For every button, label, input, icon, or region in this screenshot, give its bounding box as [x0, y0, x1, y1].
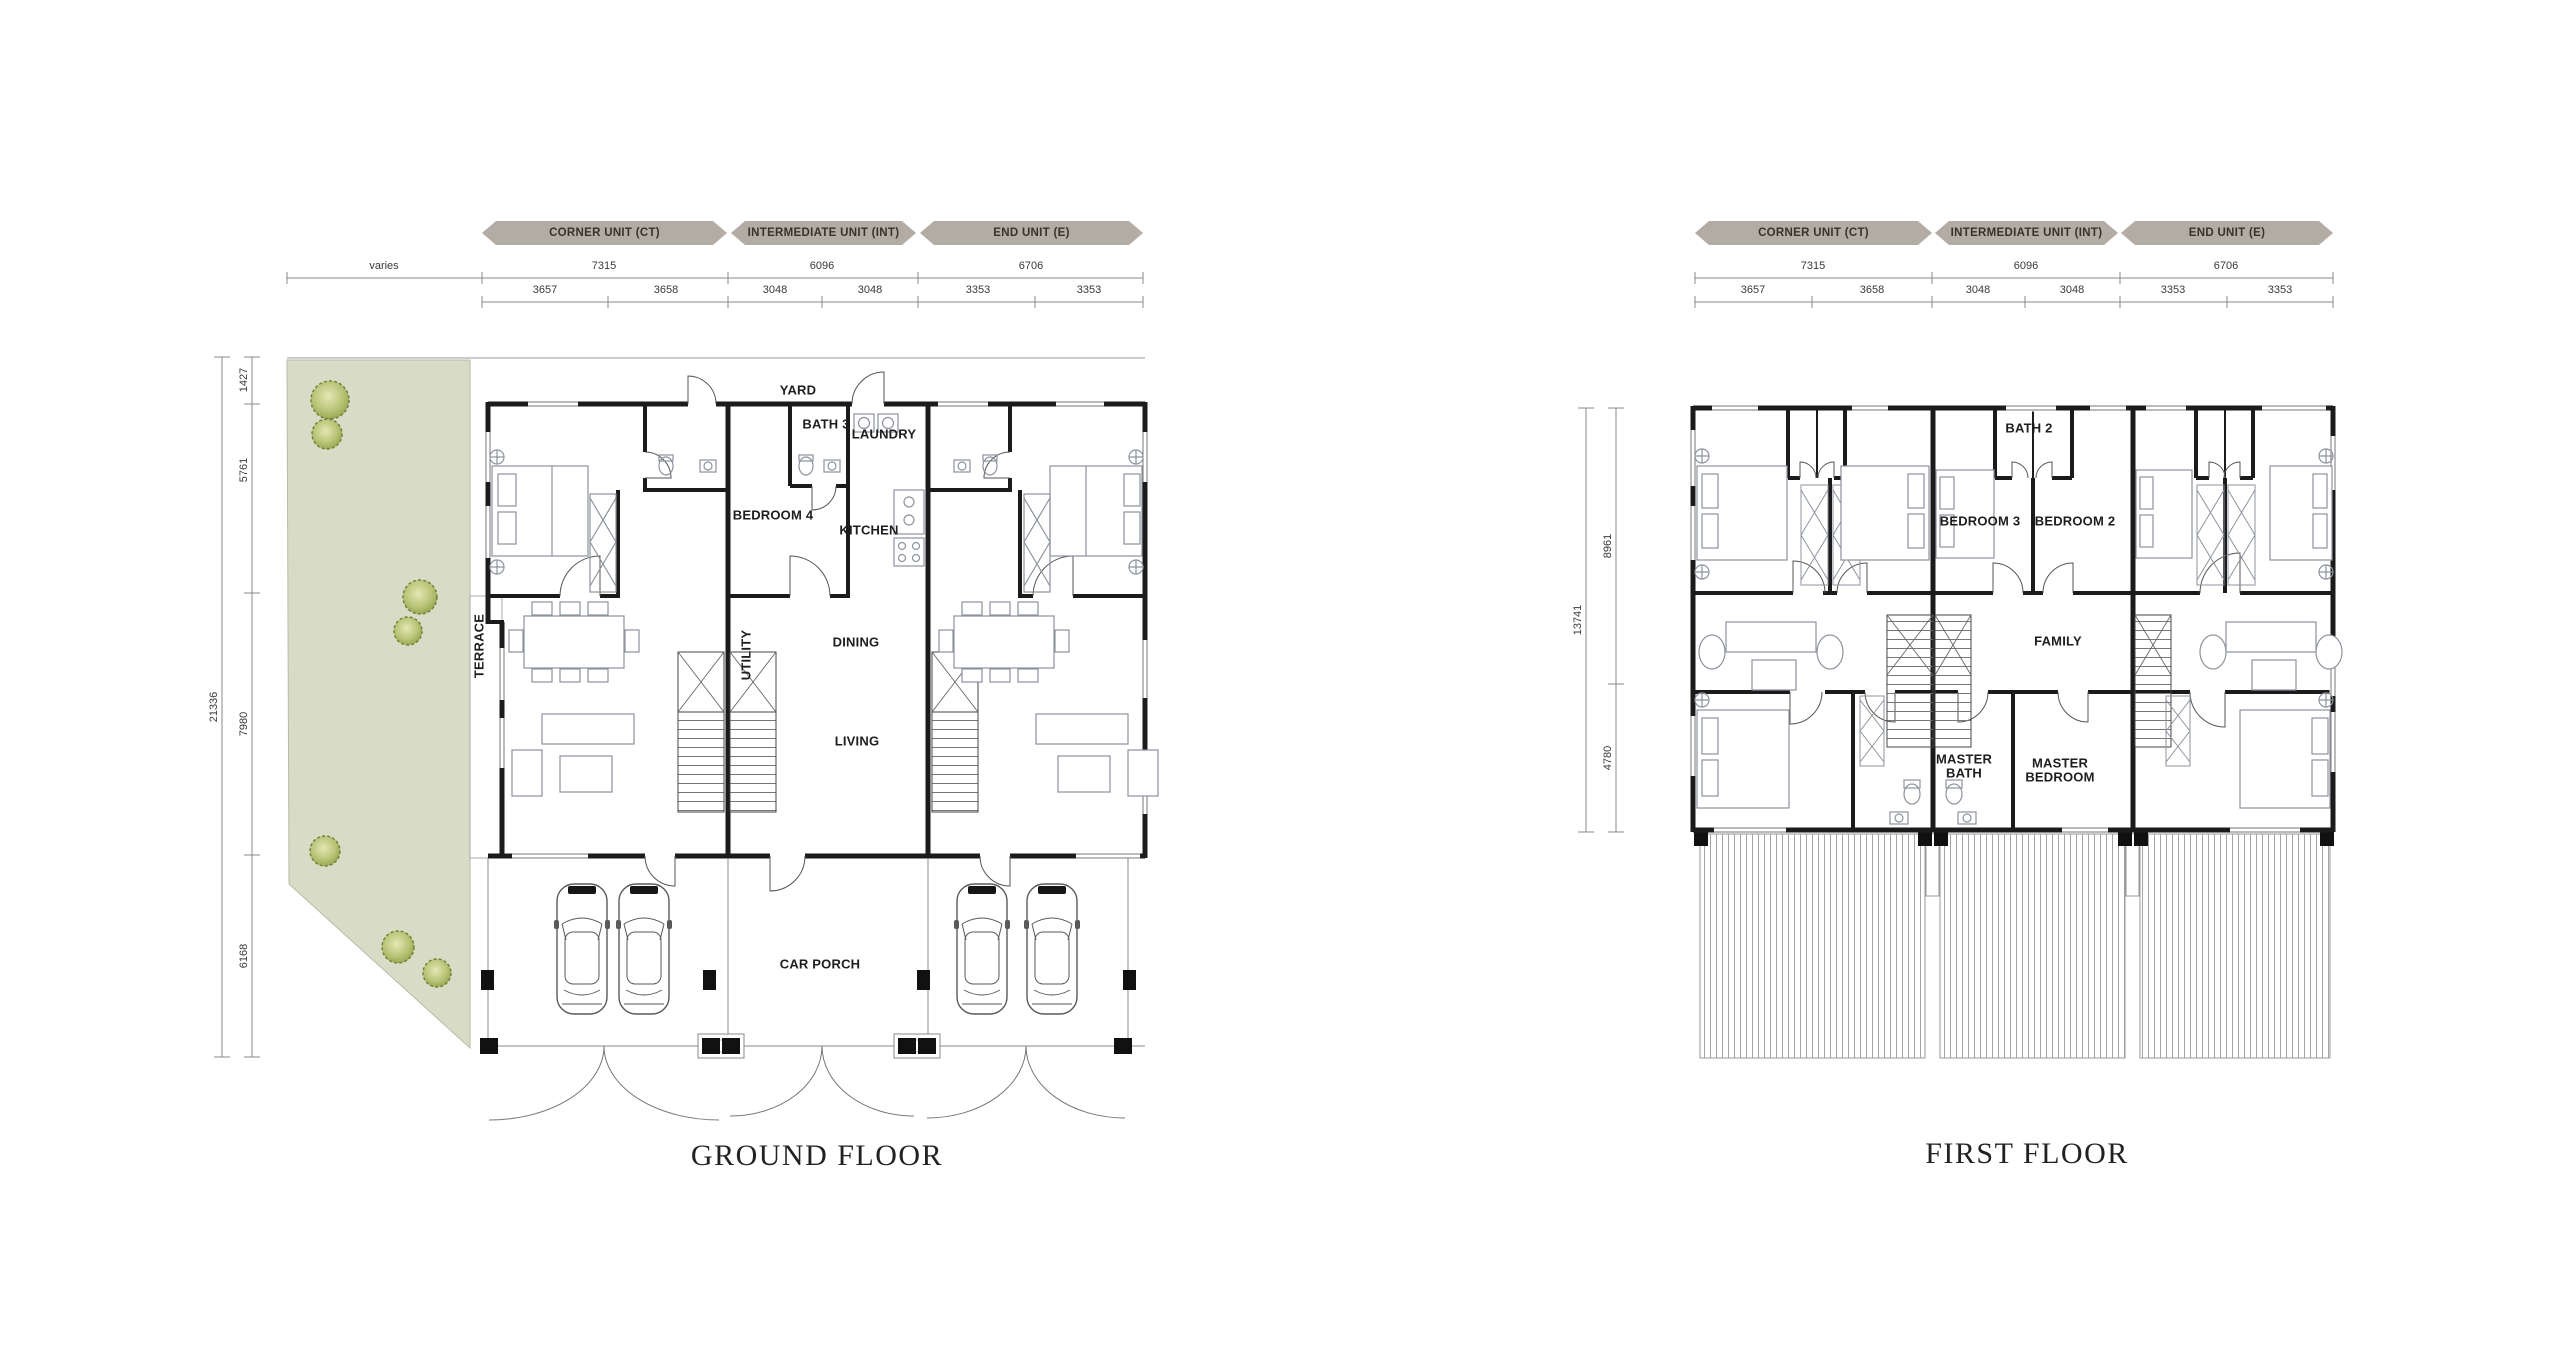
room-label-laundry: LAUNDRY — [852, 427, 916, 442]
banner-intermediate-unit-first: INTERMEDIATE UNIT (INT) — [1935, 221, 2118, 245]
dim-overall-height-ground: 21336 — [208, 692, 220, 723]
dim-sub: 3353 — [1077, 284, 1101, 296]
dim-sub: 3048 — [1966, 284, 1990, 296]
first-floor-title: FIRST FLOOR — [1925, 1137, 2129, 1171]
dim-sub: 3658 — [1860, 284, 1884, 296]
dim-sub: 3048 — [2060, 284, 2084, 296]
dim-top: 7315 — [592, 260, 616, 272]
dim-overall-height-first: 13741 — [1572, 605, 1584, 636]
dim-top: 6706 — [1019, 260, 1043, 272]
banner-label: CORNER UNIT (CT) — [549, 227, 660, 239]
ground-stairs — [678, 652, 978, 812]
porch-roof-hatch — [1694, 832, 2334, 1058]
floor-plan-drawing — [0, 0, 2560, 1358]
room-label-master-bath: MASTER BATH — [1932, 752, 1996, 779]
dim-sub: 3048 — [858, 284, 882, 296]
ground-furniture — [490, 414, 1158, 796]
dim-sub: 3353 — [966, 284, 990, 296]
dim-top: 6706 — [2214, 260, 2238, 272]
dim-sub: 3353 — [2161, 284, 2185, 296]
room-label-bath3: BATH 3 — [802, 417, 849, 432]
room-label-bedroom2: BEDROOM 2 — [2035, 514, 2116, 529]
dim-sub: 3353 — [2268, 284, 2292, 296]
room-label-car-porch: CAR PORCH — [780, 957, 861, 972]
first-floor-plan — [1578, 272, 2342, 1058]
banner-label: INTERMEDIATE UNIT (INT) — [1951, 227, 2103, 239]
dim-left: 7980 — [238, 712, 250, 736]
ground-floor-plan — [214, 272, 1158, 1120]
room-label-yard: YARD — [780, 383, 816, 398]
banner-label: END UNIT (E) — [2189, 227, 2265, 239]
banner-label: CORNER UNIT (CT) — [1758, 227, 1869, 239]
room-label-terrace: TERRACE — [472, 614, 487, 678]
dim-sub: 3657 — [533, 284, 557, 296]
dim-left: 8961 — [1602, 534, 1614, 558]
room-label-bedroom4: BEDROOM 4 — [733, 508, 814, 523]
banner-corner-unit-first: CORNER UNIT (CT) — [1695, 221, 1932, 245]
room-label-utility: UTILITY — [739, 630, 754, 681]
banner-corner-unit-ground: CORNER UNIT (CT) — [482, 221, 727, 245]
dim-top: 6096 — [810, 260, 834, 272]
floor-plan-sheet: CORNER UNIT (CT) INTERMEDIATE UNIT (INT)… — [0, 0, 2560, 1358]
dim-left: 4780 — [1602, 746, 1614, 770]
room-label-kitchen: KITCHEN — [839, 523, 898, 538]
dim-sub: 3657 — [1741, 284, 1765, 296]
garden-area — [287, 360, 470, 1048]
dim-top: 7315 — [1801, 260, 1825, 272]
dim-left: 5761 — [238, 458, 250, 482]
banner-intermediate-unit-ground: INTERMEDIATE UNIT (INT) — [731, 221, 916, 245]
first-stairs — [1887, 615, 2171, 747]
ground-floor-title: GROUND FLOOR — [691, 1139, 943, 1173]
room-label-bedroom3: BEDROOM 3 — [1940, 514, 2021, 529]
room-label-dining: DINING — [833, 635, 880, 650]
dim-varies: varies — [369, 260, 398, 272]
dim-left: 1427 — [238, 368, 250, 392]
banner-label: INTERMEDIATE UNIT (INT) — [748, 227, 900, 239]
car-icons — [554, 884, 1080, 1014]
room-label-living: LIVING — [835, 734, 880, 749]
room-label-family: FAMILY — [2034, 634, 2082, 649]
dim-left: 6168 — [238, 944, 250, 968]
banner-label: END UNIT (E) — [993, 227, 1069, 239]
dim-sub: 3048 — [763, 284, 787, 296]
room-label-bath2: BATH 2 — [2005, 421, 2052, 436]
room-label-master-bedroom: MASTER BEDROOM — [2018, 756, 2102, 783]
banner-end-unit-ground: END UNIT (E) — [920, 221, 1143, 245]
dim-top: 6096 — [2014, 260, 2038, 272]
banner-end-unit-first: END UNIT (E) — [2121, 221, 2333, 245]
dim-sub: 3658 — [654, 284, 678, 296]
